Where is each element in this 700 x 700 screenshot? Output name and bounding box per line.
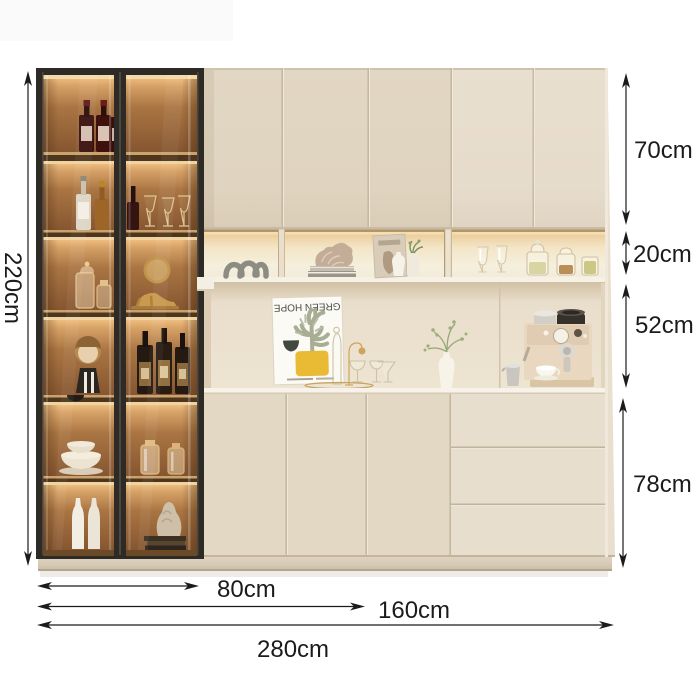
svg-text:220cm: 220cm [0,252,26,324]
svg-text:70cm: 70cm [634,137,693,164]
svg-text:78cm: 78cm [633,471,692,498]
svg-text:280cm: 280cm [257,636,329,663]
svg-text:80cm: 80cm [217,576,276,603]
svg-text:20cm: 20cm [633,241,692,268]
svg-text:160cm: 160cm [378,597,450,624]
svg-text:52cm: 52cm [635,312,694,339]
svg-text:GREEN HOPE: GREEN HOPE [273,300,340,313]
